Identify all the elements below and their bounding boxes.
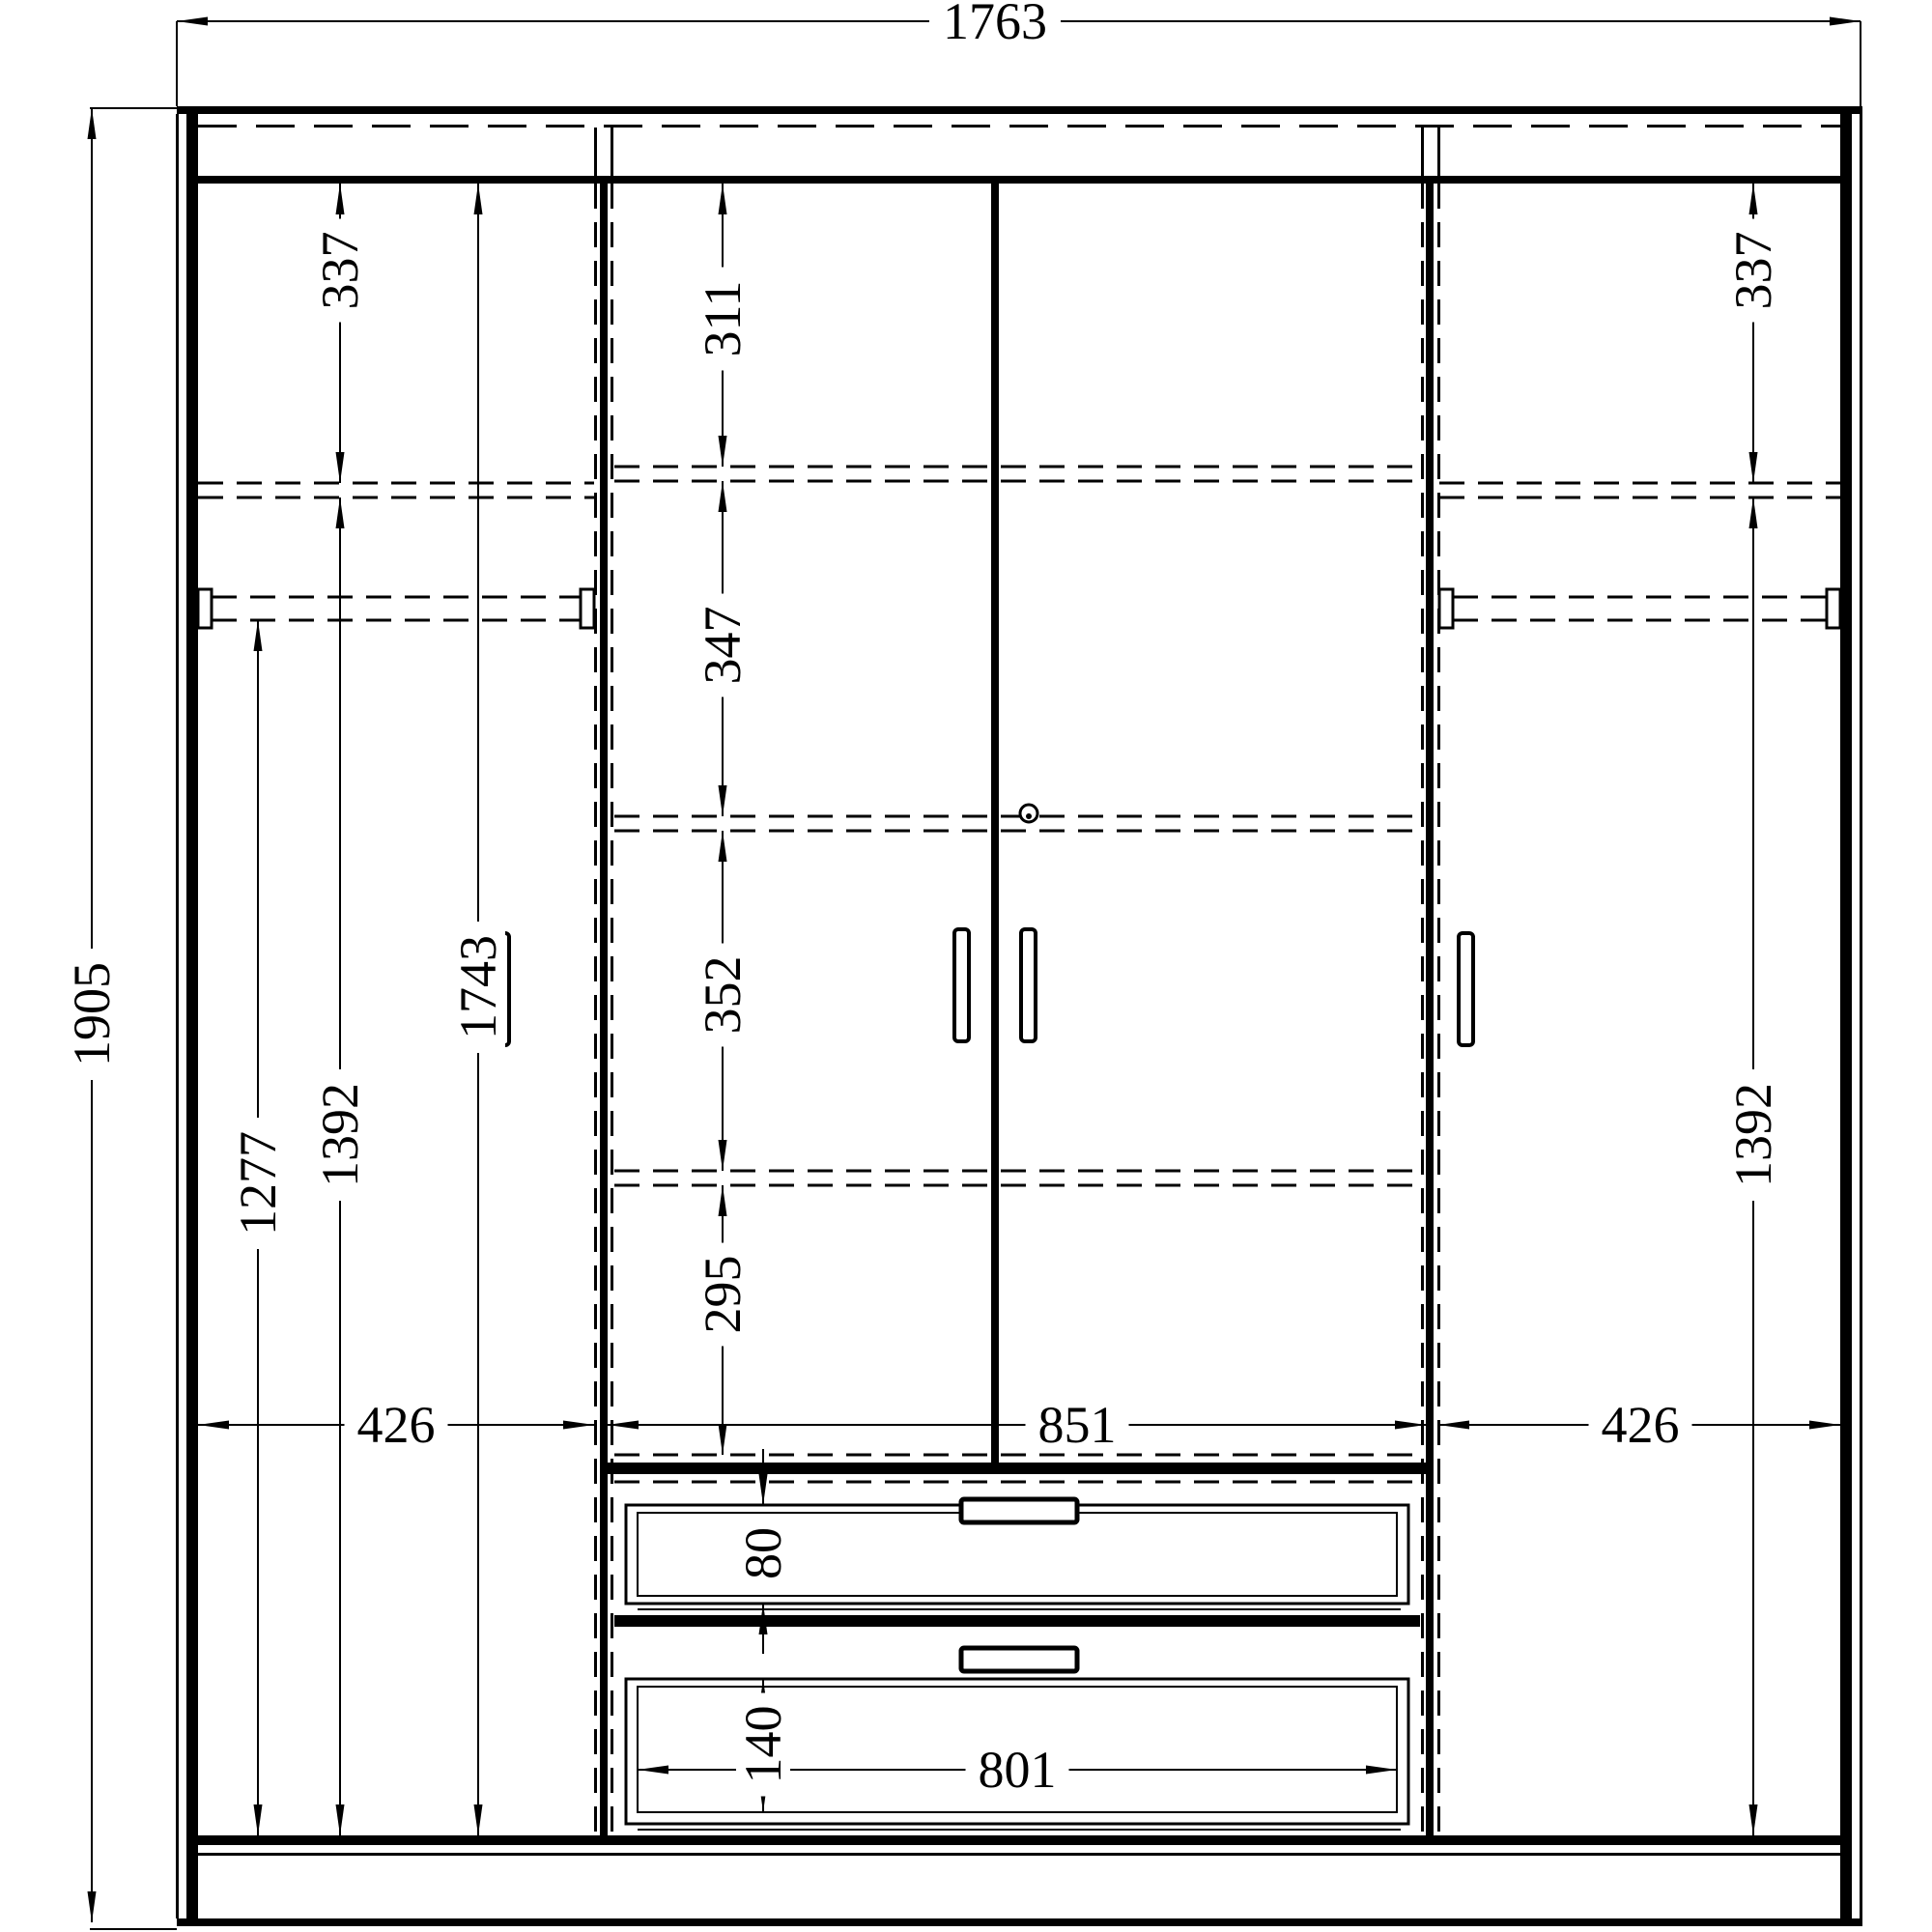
center-left-door-handle	[954, 929, 969, 1041]
dim-label-337-left: 337	[311, 232, 369, 310]
lock-pin	[1026, 813, 1032, 819]
left-rail-bracket-divider	[581, 589, 594, 628]
dim-label-1277: 1277	[229, 1131, 287, 1236]
dim-label-80: 80	[734, 1527, 792, 1579]
dim-label-1763: 1763	[943, 0, 1047, 50]
drawer-2-handle	[961, 1648, 1077, 1671]
right-divider-door-edge	[1426, 184, 1434, 1835]
top-panel	[177, 106, 1862, 114]
drawer-zone-top-rail	[608, 1463, 1426, 1474]
dim-label-1905: 1905	[63, 962, 121, 1066]
dim-label-1392-left: 1392	[311, 1083, 369, 1187]
dim-label-1743: 1743	[449, 935, 507, 1039]
right-side-panel	[1840, 114, 1852, 1918]
interior-top-shelf	[198, 176, 1840, 184]
interior-bottom-shelf	[198, 1835, 1840, 1845]
wardrobe-technical-drawing: 1763190533731134735229517431392127733713…	[0, 0, 1932, 1932]
left-side-panel	[186, 114, 198, 1918]
dim-label-426-right: 426	[1602, 1396, 1680, 1454]
left-rail-bracket-wall	[198, 589, 212, 628]
dim-label-1392-right: 1392	[1724, 1083, 1782, 1187]
dim-label-352: 352	[694, 956, 752, 1035]
right-door-handle	[1459, 933, 1473, 1045]
drawing-canvas: 1763190533731134735229517431392127733713…	[0, 0, 1932, 1932]
bottom-panel	[177, 1918, 1862, 1926]
dim-label-801: 801	[979, 1741, 1057, 1799]
right-rail-bracket-divider	[1439, 589, 1453, 628]
center-door-split	[991, 184, 999, 1463]
left-divider-door-edge	[600, 184, 608, 1835]
dim-label-851: 851	[1038, 1396, 1117, 1454]
drawer-separator-rail	[614, 1615, 1420, 1627]
dim-label-337-right: 337	[1724, 232, 1782, 310]
dim-label-311: 311	[694, 281, 752, 357]
right-rail-bracket-wall	[1827, 589, 1840, 628]
dim-label-347: 347	[694, 607, 752, 685]
dim-label-140: 140	[734, 1706, 792, 1784]
drawer-1-handle	[961, 1499, 1077, 1522]
center-right-door-handle	[1021, 929, 1036, 1041]
dim-label-426-left: 426	[357, 1396, 436, 1454]
dim-label-295: 295	[694, 1256, 752, 1334]
